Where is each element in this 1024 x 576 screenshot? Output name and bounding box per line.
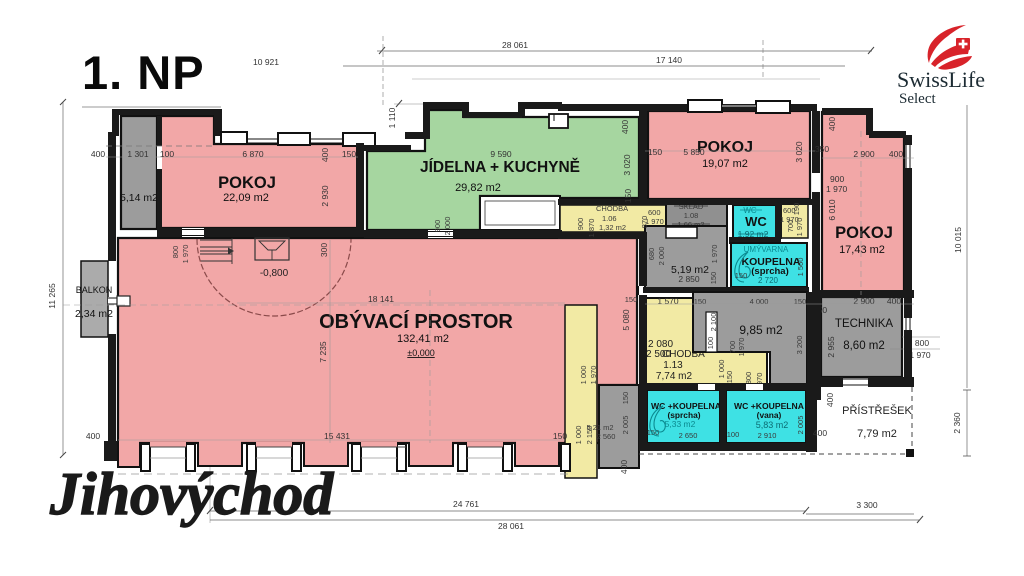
svg-text:400: 400	[619, 460, 629, 474]
svg-text:150: 150	[625, 295, 638, 304]
svg-text:17,43 m2: 17,43 m2	[839, 244, 885, 256]
svg-text:28 061: 28 061	[502, 40, 528, 50]
svg-text:5,21 m2: 5,21 m2	[586, 423, 613, 432]
svg-text:3 200: 3 200	[795, 336, 804, 355]
svg-text:3 020: 3 020	[794, 141, 804, 163]
svg-text:9,85 m2: 9,85 m2	[739, 323, 783, 337]
svg-text:150: 150	[794, 297, 807, 306]
svg-text:2 000: 2 000	[657, 247, 666, 266]
svg-text:9 590: 9 590	[490, 149, 512, 159]
svg-text:900: 900	[433, 220, 442, 233]
svg-text:1 000: 1 000	[579, 366, 588, 385]
svg-text:600: 600	[648, 208, 661, 217]
svg-text:±0,000: ±0,000	[407, 348, 434, 358]
svg-text:1 570: 1 570	[657, 296, 679, 306]
svg-text:1 970: 1 970	[795, 218, 804, 237]
svg-text:1 301: 1 301	[127, 149, 149, 159]
svg-text:7 235: 7 235	[318, 341, 328, 363]
svg-text:UMÝVARNA: UMÝVARNA	[744, 245, 789, 254]
svg-text:1 110: 1 110	[387, 107, 397, 128]
svg-text:400: 400	[825, 393, 835, 407]
svg-text:2 650: 2 650	[679, 431, 698, 440]
svg-text:100: 100	[706, 337, 715, 350]
svg-text:300: 300	[319, 243, 329, 257]
svg-text:400: 400	[827, 117, 837, 131]
svg-text:2 100: 2 100	[709, 313, 718, 332]
svg-text:Select: Select	[899, 91, 936, 107]
svg-text:SwissLife: SwissLife	[897, 67, 985, 92]
svg-text:1 970: 1 970	[710, 245, 719, 264]
svg-text:29,82 m2: 29,82 m2	[455, 182, 501, 194]
svg-text:10 015: 10 015	[953, 227, 963, 253]
svg-text:17 140: 17 140	[656, 55, 682, 65]
svg-text:-0,800: -0,800	[260, 268, 289, 279]
svg-text:900: 900	[830, 174, 844, 184]
svg-text:1 560: 1 560	[796, 258, 805, 277]
svg-text:150: 150	[648, 147, 662, 157]
svg-text:15 431: 15 431	[324, 431, 350, 441]
svg-text:POKOJ: POKOJ	[218, 174, 276, 192]
svg-text:CHODBA: CHODBA	[596, 204, 628, 213]
svg-text:350: 350	[815, 144, 829, 154]
svg-text:POKOJ: POKOJ	[697, 139, 753, 156]
svg-text:18 141: 18 141	[368, 294, 394, 304]
svg-text:5 850: 5 850	[683, 147, 705, 157]
svg-text:7,74 m2: 7,74 m2	[656, 371, 693, 382]
svg-text:8,60 m2: 8,60 m2	[843, 340, 885, 352]
svg-text:800: 800	[915, 338, 929, 348]
svg-text:1 970: 1 970	[826, 184, 848, 194]
svg-text:400: 400	[889, 149, 903, 159]
svg-text:400: 400	[86, 431, 100, 441]
svg-text:4 000: 4 000	[750, 297, 769, 306]
svg-text:2 930: 2 930	[320, 185, 330, 207]
svg-text:400: 400	[91, 149, 105, 159]
svg-text:2 560: 2 560	[597, 432, 616, 441]
svg-text:POKOJ: POKOJ	[835, 224, 893, 242]
svg-text:6 870: 6 870	[242, 149, 264, 159]
svg-text:1 870: 1 870	[587, 219, 596, 238]
svg-text:5,33 m2: 5,33 m2	[665, 419, 696, 429]
svg-text:10 921: 10 921	[253, 57, 279, 67]
svg-text:5,14 m2: 5,14 m2	[120, 192, 158, 204]
svg-text:6 010: 6 010	[827, 199, 837, 221]
svg-text:150: 150	[694, 297, 707, 306]
svg-text:22,09 m2: 22,09 m2	[223, 192, 269, 204]
svg-text:700: 700	[728, 341, 737, 354]
svg-text:1.06: 1.06	[602, 214, 617, 223]
svg-text:11 265: 11 265	[47, 283, 57, 309]
svg-text:2,34 m2: 2,34 m2	[75, 308, 113, 320]
svg-text:100: 100	[160, 149, 174, 159]
svg-text:2 000: 2 000	[443, 217, 452, 236]
svg-text:5 080: 5 080	[621, 309, 631, 331]
svg-text:2 720: 2 720	[758, 276, 779, 285]
svg-text:150: 150	[621, 392, 630, 405]
svg-text:2 910: 2 910	[758, 431, 777, 440]
svg-text:400: 400	[620, 120, 630, 134]
svg-text:150: 150	[342, 149, 356, 159]
svg-text:900: 900	[576, 218, 585, 231]
svg-text:3 300: 3 300	[856, 500, 878, 510]
svg-text:28 061: 28 061	[498, 521, 524, 531]
svg-text:1. NP: 1. NP	[82, 46, 205, 99]
svg-text:150: 150	[623, 189, 633, 203]
svg-text:TECHNIKA: TECHNIKA	[835, 318, 893, 330]
svg-text:150: 150	[553, 431, 567, 441]
svg-text:2 850: 2 850	[678, 274, 700, 284]
svg-text:2 360: 2 360	[952, 412, 962, 434]
svg-text:19,07 m2: 19,07 m2	[702, 158, 748, 170]
svg-text:150: 150	[735, 271, 748, 280]
svg-text:800: 800	[744, 372, 753, 385]
svg-text:OBÝVACÍ PROSTOR: OBÝVACÍ PROSTOR	[319, 309, 513, 333]
svg-text:1 000: 1 000	[574, 426, 583, 445]
svg-text:150: 150	[709, 272, 718, 285]
svg-text:BALKON: BALKON	[76, 285, 113, 295]
svg-text:1 970: 1 970	[909, 350, 931, 360]
svg-text:132,41 m2: 132,41 m2	[397, 333, 449, 345]
svg-text:190: 190	[792, 203, 801, 216]
svg-text:1,32 m2: 1,32 m2	[599, 223, 626, 232]
svg-text:2 955: 2 955	[826, 336, 836, 358]
svg-text:800: 800	[171, 246, 180, 259]
svg-text:1 970: 1 970	[181, 245, 190, 264]
svg-text:100: 100	[727, 430, 740, 439]
svg-text:WC: WC	[743, 206, 757, 215]
svg-text:1 970: 1 970	[589, 366, 598, 385]
svg-text:7,79 m2: 7,79 m2	[857, 428, 897, 440]
svg-text:2 005: 2 005	[621, 416, 630, 435]
svg-text:PŘÍSTŘEŠEK: PŘÍSTŘEŠEK	[842, 404, 912, 417]
svg-text:24 761: 24 761	[453, 499, 479, 509]
svg-text:Jihovýchod: Jihovýchod	[49, 461, 334, 527]
svg-text:JÍDELNA + KUCHYNĚ: JÍDELNA + KUCHYNĚ	[420, 158, 580, 176]
svg-text:870: 870	[640, 216, 649, 229]
svg-text:1 970: 1 970	[737, 338, 746, 357]
svg-text:(vana): (vana)	[757, 410, 782, 420]
svg-text:400: 400	[320, 148, 330, 162]
svg-text:3 020: 3 020	[622, 154, 632, 176]
svg-text:700: 700	[786, 220, 795, 233]
svg-text:1.08: 1.08	[684, 211, 699, 220]
svg-text:2 005: 2 005	[796, 416, 805, 435]
svg-text:680: 680	[647, 248, 656, 261]
svg-text:5,83 m2: 5,83 m2	[756, 420, 789, 430]
svg-text:150: 150	[725, 371, 734, 384]
svg-text:WC: WC	[745, 214, 767, 229]
svg-text:1.13: 1.13	[663, 360, 683, 371]
svg-text:400: 400	[813, 428, 827, 438]
svg-text:2 900: 2 900	[853, 149, 875, 159]
